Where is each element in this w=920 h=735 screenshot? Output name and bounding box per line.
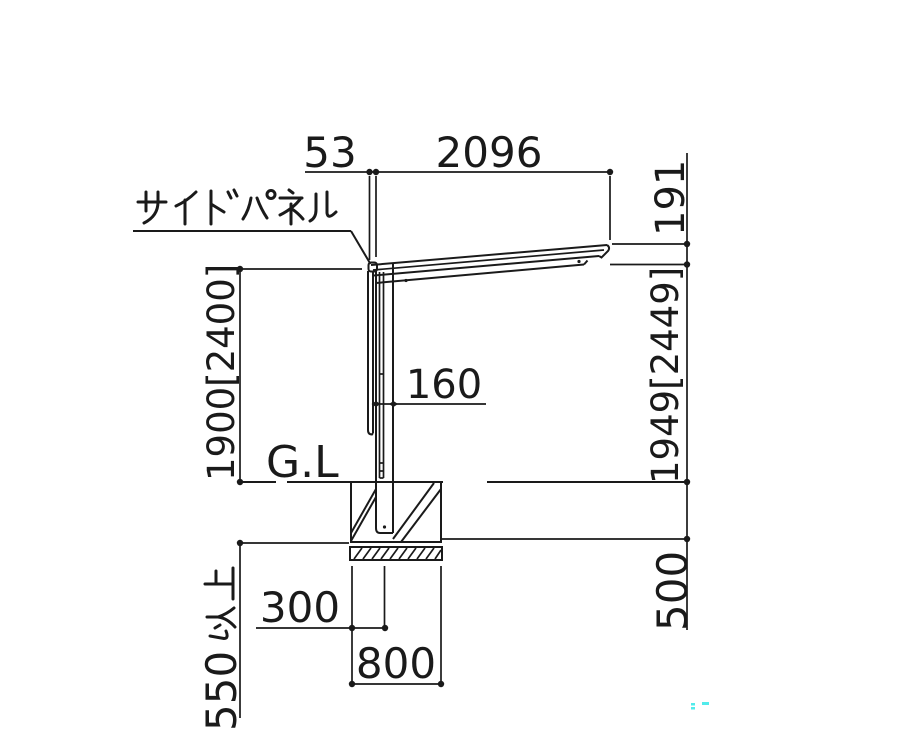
dim-text-2096: 2096 (436, 128, 543, 177)
roof-inner-line (373, 250, 604, 270)
post-and-side-panel (368, 264, 393, 482)
dim-endpoint-dot (382, 625, 388, 631)
footing-hatch-band (393, 483, 434, 539)
dim-diamond-marker (389, 401, 398, 407)
dim-text-1900-2400: 1900[2400] (200, 264, 243, 481)
footing-hatch-band (351, 497, 376, 541)
dim-text-800: 800 (356, 639, 436, 688)
dim-endpoint-dot (684, 241, 690, 247)
dim-endpoint-dot (438, 681, 444, 687)
gravel-hatch (354, 548, 441, 559)
dim-endpoint-dot (684, 261, 690, 267)
ground-line: G.L (243, 437, 684, 488)
dim-left: 1900[2400] 550 以上 (197, 264, 362, 731)
roof-top-edge (371, 245, 607, 265)
beam-screw-dot (404, 279, 407, 282)
dim-endpoint-dot (684, 536, 690, 542)
dim-endpoint-dot (349, 681, 355, 687)
dim-text-191: 191 (648, 160, 694, 236)
footing-hatch-band (401, 489, 441, 542)
dim-endpoint-dot (366, 169, 372, 175)
technical-drawing-canvas: G.L 53 2096 191 1949[2449] 500 1900[ (0, 0, 920, 735)
footing-hatch-band (351, 489, 376, 533)
dim-text-300: 300 (260, 583, 340, 632)
dim-text-53: 53 (303, 128, 356, 177)
dim-160: 160 (372, 362, 487, 408)
dim-endpoint-dot (237, 540, 243, 546)
drawing-page: G.L 53 2096 191 1949[2449] 500 1900[ (0, 0, 920, 735)
beam-end-cap (584, 261, 588, 265)
dim-text-550: 550 (197, 651, 246, 731)
dim-endpoint-dot (373, 169, 379, 175)
side-panel-callout: サイドパネル (133, 186, 373, 264)
roof-assembly (369, 245, 610, 283)
dim-endpoint-dot (349, 625, 355, 631)
anchor-dot (383, 525, 386, 528)
dim-text-550-min: 550 以上 (197, 563, 246, 731)
beam-screw-dot (577, 260, 580, 263)
post-embedded-bottom (376, 528, 393, 533)
callout-leader-line (351, 231, 371, 264)
dim-text-1949-2449: 1949[2449] (644, 267, 687, 484)
dim-endpoint-dot (607, 169, 613, 175)
ground-level-label: G.L (266, 437, 339, 488)
watermark-artifact (691, 702, 709, 710)
dim-text-500: 500 (648, 551, 697, 631)
dim-text-160: 160 (406, 362, 482, 408)
roof-front-tip (599, 245, 609, 258)
foundation (350, 482, 442, 560)
dim-bottom: 300 800 (256, 566, 444, 688)
